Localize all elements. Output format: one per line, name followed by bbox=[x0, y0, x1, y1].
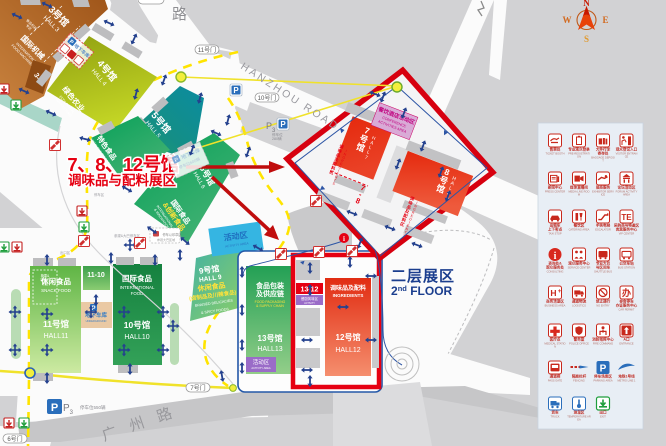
svg-text:寄存处: 寄存处 bbox=[598, 151, 609, 156]
svg-text:及供应链: 及供应链 bbox=[256, 289, 284, 298]
svg-text:货车: 货车 bbox=[550, 410, 559, 415]
svg-text:TICKET BOOTH: TICKET BOOTH bbox=[545, 152, 564, 156]
svg-text:P: P bbox=[233, 86, 239, 95]
svg-text:CONSULTING: CONSULTING bbox=[547, 270, 564, 274]
svg-text:CE: CE bbox=[625, 155, 629, 159]
svg-text:医疗点: 医疗点 bbox=[550, 337, 561, 342]
svg-text:POLICE OFFICE: POLICE OFFICE bbox=[569, 342, 589, 346]
svg-text:HALL13: HALL13 bbox=[257, 346, 282, 353]
svg-text:10号馆: 10号馆 bbox=[124, 320, 151, 330]
svg-text:HALL10: HALL10 bbox=[124, 334, 149, 341]
svg-text:休闲食品: 休闲食品 bbox=[40, 276, 71, 286]
svg-text:售票处: 售票处 bbox=[550, 147, 561, 152]
svg-text:ESCALATOR: ESCALATOR bbox=[595, 228, 611, 232]
svg-text:国际食品: 国际食品 bbox=[122, 273, 152, 283]
svg-text:食品包装: 食品包装 bbox=[255, 281, 284, 290]
svg-text:FENCING: FENCING bbox=[573, 379, 585, 383]
svg-text:停车以印章区: 停车以印章区 bbox=[162, 232, 182, 237]
svg-text:A口: A口 bbox=[623, 337, 630, 342]
svg-text:CATERING AREA: CATERING AREA bbox=[569, 228, 590, 232]
svg-text:TAXI STOP: TAXI STOP bbox=[548, 232, 562, 236]
svg-text:禁止通行: 禁止通行 bbox=[596, 299, 611, 304]
svg-text:INGREDIENTS: INGREDIENTS bbox=[333, 293, 364, 298]
svg-text:N: N bbox=[554, 345, 556, 349]
svg-text:6号门: 6号门 bbox=[7, 435, 22, 443]
svg-text:W: W bbox=[563, 15, 572, 25]
svg-text:商务洽谈区: 商务洽谈区 bbox=[546, 299, 564, 304]
svg-text:观众服务处: 观众服务处 bbox=[545, 265, 564, 270]
svg-text:BUSINESS AREA: BUSINESS AREA bbox=[545, 304, 566, 308]
svg-text:参观大巴区域: 参观大巴区域 bbox=[157, 237, 175, 242]
svg-text:新闻中心: 新闻中心 bbox=[548, 185, 563, 190]
svg-text:论坛活动区: 论坛活动区 bbox=[618, 185, 636, 190]
svg-text:M: M bbox=[578, 193, 580, 197]
svg-text:出口区: 出口区 bbox=[60, 250, 71, 255]
svg-text:ON: ON bbox=[577, 155, 581, 159]
svg-text:7号门: 7号门 bbox=[190, 384, 205, 392]
svg-text:公交车站: 公交车站 bbox=[619, 261, 634, 266]
svg-text:观众服务中心: 观众服务中心 bbox=[567, 261, 590, 266]
svg-text:280辆: 280辆 bbox=[272, 136, 282, 141]
svg-text:专业观众登录: 专业观众登录 bbox=[568, 147, 590, 152]
svg-text:H: H bbox=[550, 288, 556, 298]
svg-text:P: P bbox=[600, 364, 607, 375]
svg-text:ACTIVITY: ACTIVITY bbox=[304, 302, 315, 305]
svg-text:路: 路 bbox=[172, 6, 187, 23]
svg-text:BUS STATION: BUS STATION bbox=[618, 266, 635, 270]
svg-text:NO ENTRY: NO ENTRY bbox=[596, 304, 610, 308]
svg-text:TE: TE bbox=[621, 213, 632, 222]
svg-text:与区间车: 与区间车 bbox=[596, 265, 611, 270]
svg-text:i: i bbox=[343, 235, 345, 243]
svg-text:观众登记入口: 观众登记入口 bbox=[615, 147, 638, 152]
svg-text:调味品与配料展区: 调味品与配料展区 bbox=[68, 172, 176, 188]
svg-text:EA: EA bbox=[577, 418, 581, 422]
svg-text:P: P bbox=[51, 402, 58, 414]
svg-text:P: P bbox=[280, 120, 286, 129]
svg-text:N: N bbox=[583, 0, 590, 8]
svg-text:LOGISTICS: LOGISTICS bbox=[572, 304, 586, 308]
svg-text:S: S bbox=[584, 34, 589, 44]
svg-text:VIP CENTER: VIP CENTER bbox=[619, 232, 635, 236]
svg-text:活动区: 活动区 bbox=[253, 358, 270, 366]
svg-text:UNDERGROUND: UNDERGROUND bbox=[86, 319, 107, 323]
svg-text:TRUCK: TRUCK bbox=[551, 415, 560, 419]
svg-text:HALL12: HALL12 bbox=[335, 347, 360, 354]
svg-text:餐厨风味区: 餐厨风味区 bbox=[301, 296, 319, 301]
svg-text:出口: 出口 bbox=[599, 410, 607, 415]
svg-text:停车区: 停车区 bbox=[94, 192, 105, 197]
svg-text:11号馆: 11号馆 bbox=[43, 319, 69, 329]
svg-text:SERVICE CENTER: SERVICE CENTER bbox=[568, 266, 591, 270]
svg-text:PARKING AREA: PARKING AREA bbox=[593, 379, 612, 383]
svg-text:贵宾服务中心: 贵宾服务中心 bbox=[616, 227, 638, 232]
svg-text:停车场库区: 停车场库区 bbox=[594, 374, 612, 379]
svg-text:二层展区: 二层展区 bbox=[391, 268, 455, 285]
svg-text:11号门: 11号门 bbox=[198, 46, 216, 54]
svg-text:PRESS CENTER: PRESS CENTER bbox=[545, 190, 565, 194]
svg-text:办: 办 bbox=[622, 287, 631, 298]
svg-text:CAR PERMIT: CAR PERMIT bbox=[619, 308, 635, 312]
svg-text:10号门: 10号门 bbox=[258, 94, 277, 102]
svg-text:调味品及配料: 调味品及配料 bbox=[330, 284, 366, 292]
svg-text:FIRE COMMAND: FIRE COMMAND bbox=[593, 342, 613, 346]
svg-text:HALL11: HALL11 bbox=[44, 333, 69, 340]
svg-text:展商服务: 展商服务 bbox=[596, 185, 611, 190]
svg-text:测温区: 测温区 bbox=[574, 410, 585, 415]
svg-text:消防指挥中心: 消防指挥中心 bbox=[592, 337, 614, 342]
svg-text:地铁1号线: 地铁1号线 bbox=[618, 374, 635, 379]
svg-text:11-10: 11-10 bbox=[87, 272, 105, 279]
svg-text:SHUTTLE BUS: SHUTTLE BUS bbox=[594, 270, 612, 274]
svg-text:通道物流: 通道物流 bbox=[572, 299, 587, 304]
svg-text:7、8、12号馆: 7、8、12号馆 bbox=[67, 154, 178, 175]
svg-text:12号馆: 12号馆 bbox=[336, 332, 361, 342]
svg-text:SNACK FOOD: SNACK FOOD bbox=[41, 288, 72, 293]
svg-text:停车位550辆: 停车位550辆 bbox=[80, 404, 106, 411]
svg-text:PASS GATE: PASS GATE bbox=[548, 379, 563, 383]
svg-text:13号馆: 13号馆 bbox=[258, 333, 283, 343]
svg-text:办证服务中心: 办证服务中心 bbox=[615, 303, 638, 308]
svg-text:手扶电梯: 手扶电梯 bbox=[596, 223, 611, 228]
svg-text:餐饮区: 餐饮区 bbox=[573, 223, 585, 228]
svg-text:AREA: AREA bbox=[623, 193, 630, 197]
svg-text:ICE: ICE bbox=[601, 193, 606, 197]
svg-text:通道闸: 通道闸 bbox=[550, 374, 561, 379]
svg-text:& SUPPLY CHAIN: & SUPPLY CHAIN bbox=[256, 304, 284, 308]
svg-text:警务室: 警务室 bbox=[573, 337, 585, 342]
svg-text:+: + bbox=[558, 289, 562, 295]
svg-text:ENTRANCE: ENTRANCE bbox=[619, 342, 634, 346]
svg-text:i: i bbox=[554, 251, 557, 262]
svg-text:隔离栏杆: 隔离栏杆 bbox=[572, 374, 587, 379]
svg-text:EXIT: EXIT bbox=[600, 415, 606, 419]
svg-text:上下客点: 上下客点 bbox=[548, 227, 563, 232]
svg-text:E: E bbox=[602, 15, 608, 25]
svg-text:媒体直播间: 媒体直播间 bbox=[569, 185, 588, 190]
svg-text:ACTIVITY AREA: ACTIVITY AREA bbox=[251, 366, 271, 370]
svg-text:METRO LINE 1: METRO LINE 1 bbox=[617, 379, 636, 383]
